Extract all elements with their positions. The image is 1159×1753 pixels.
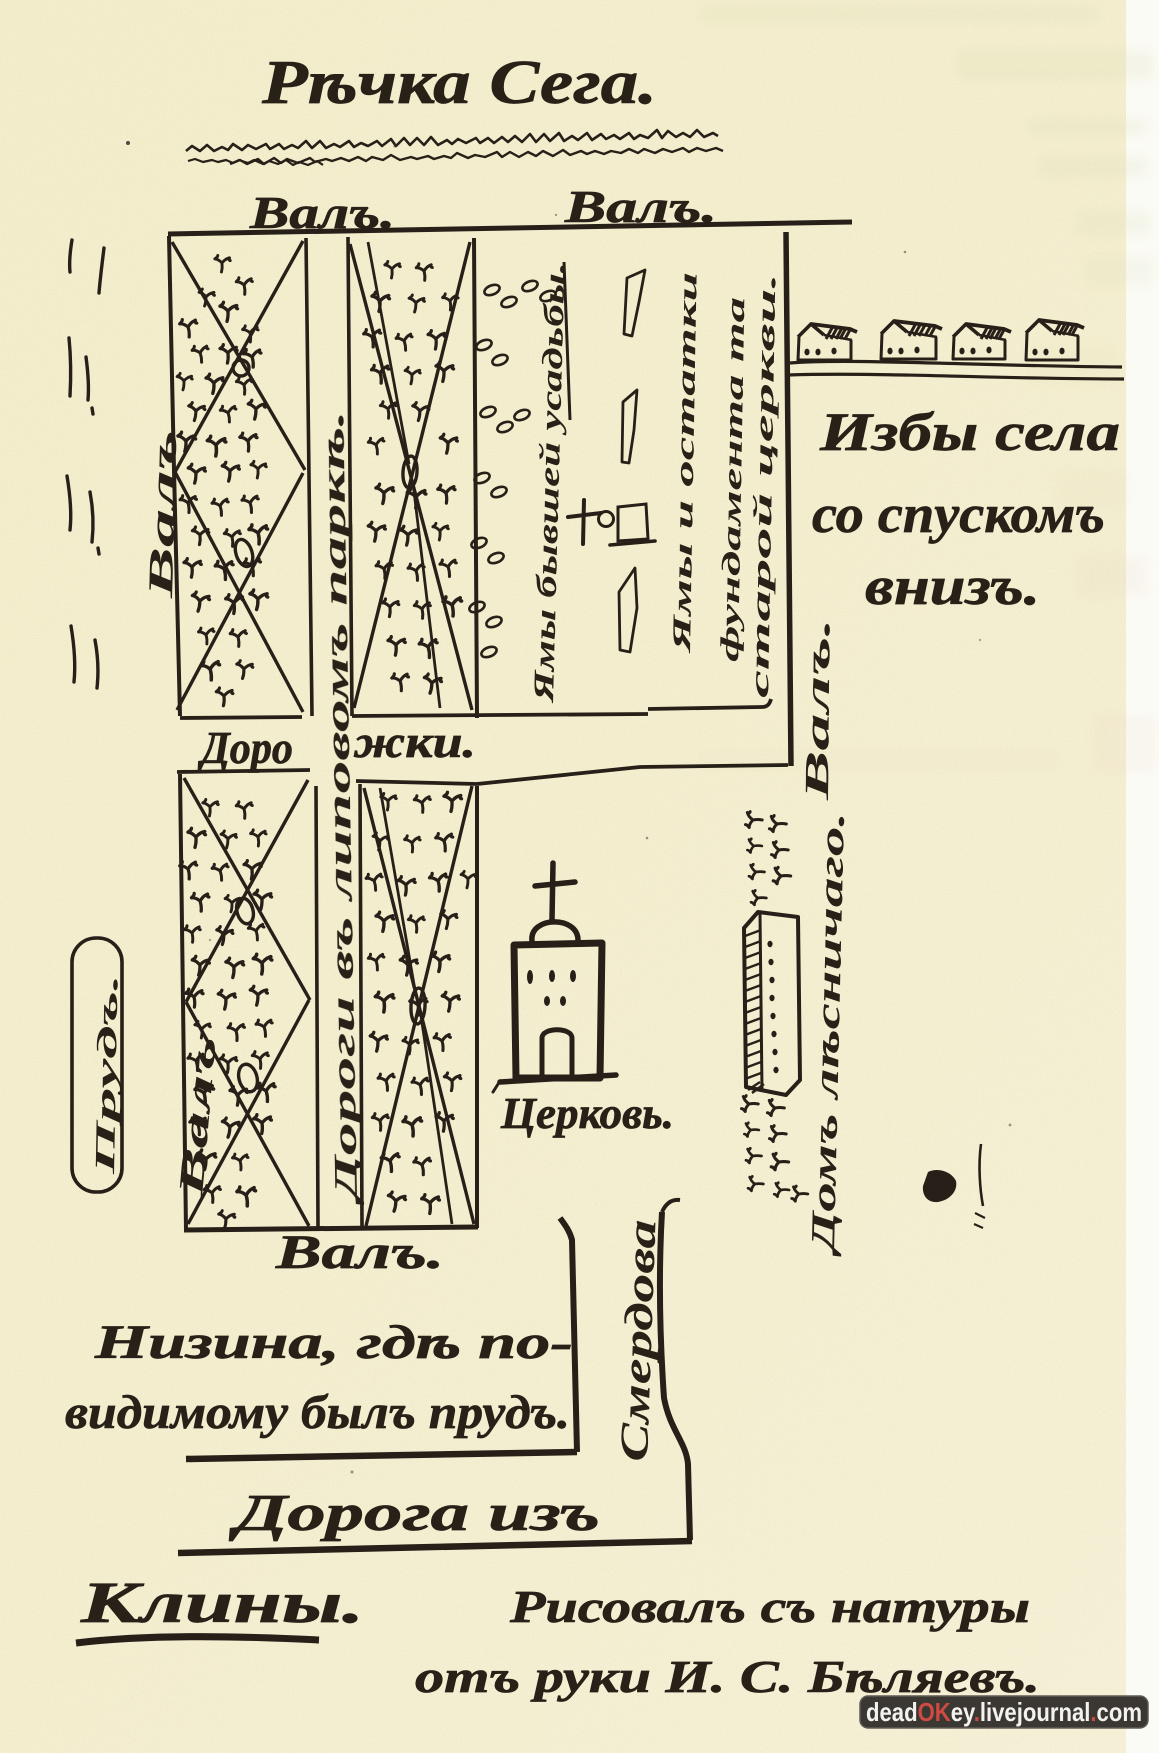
svg-text:со спускомъ: со спускомъ — [812, 484, 1105, 544]
svg-text:Валъ.: Валъ. — [275, 1226, 444, 1279]
svg-text:видимому былъ прудъ.: видимому былъ прудъ. — [65, 1386, 570, 1439]
svg-text:Прудъ.: Прудъ. — [90, 974, 125, 1177]
svg-text:Церковь.: Церковь. — [500, 1089, 674, 1138]
svg-text:deadOKey.livejournal.com: deadOKey.livejournal.com — [866, 1697, 1142, 1727]
svg-text:Избы села: Избы села — [819, 402, 1120, 462]
svg-text:Рѣчка Сега.: Рѣчка Сега. — [261, 49, 657, 117]
svg-text:жки.: жки. — [353, 716, 476, 767]
svg-text:Валъ: Валъ — [141, 429, 184, 600]
svg-text:Смердова: Смердова — [611, 1219, 664, 1462]
svg-text:Клины.: Клины. — [79, 1570, 364, 1635]
svg-text:отъ руки И. С. Бѣляевъ.: отъ руки И. С. Бѣляевъ. — [415, 1651, 1040, 1702]
svg-text:Низина, гдѣ по-: Низина, гдѣ по- — [94, 1316, 573, 1369]
svg-text:внизъ.: внизъ. — [865, 556, 1040, 616]
svg-text:Рисовалъ съ натуры: Рисовалъ съ натуры — [509, 1581, 1030, 1632]
svg-text:Дорога изъ: Дорога изъ — [229, 1485, 600, 1542]
svg-text:Доро: Доро — [197, 722, 293, 773]
svg-text:Валъ.: Валъ. — [799, 618, 838, 802]
